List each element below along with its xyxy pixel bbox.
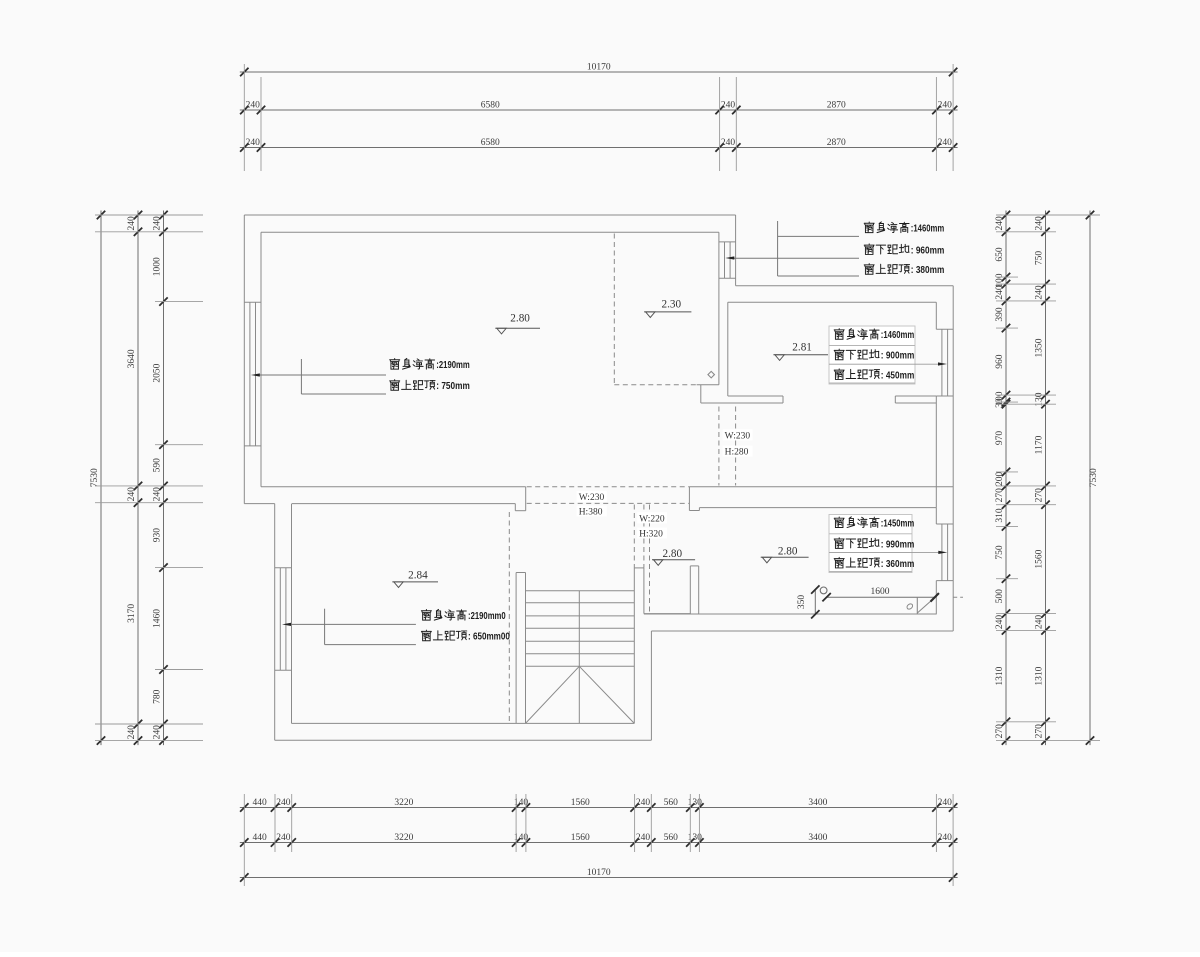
svg-text:1460: 1460 <box>153 609 163 628</box>
svg-text:240: 240 <box>938 833 953 843</box>
svg-text:270: 270 <box>995 488 1005 503</box>
svg-text:2870: 2870 <box>827 101 846 111</box>
svg-text:440: 440 <box>252 798 267 808</box>
svg-text:240: 240 <box>246 101 261 111</box>
svg-text::2190mm0: :2190mm0 <box>468 611 506 622</box>
svg-text:H:280: H:280 <box>725 448 749 458</box>
svg-text:W:220: W:220 <box>639 514 665 524</box>
svg-text:440: 440 <box>252 833 267 843</box>
svg-text:1000: 1000 <box>153 257 163 276</box>
svg-text:10170: 10170 <box>587 63 611 73</box>
svg-text:: 960mm: : 960mm <box>911 245 945 256</box>
svg-text:240: 240 <box>127 725 137 740</box>
svg-text:1170: 1170 <box>1035 435 1045 454</box>
svg-text:3640: 3640 <box>127 349 137 368</box>
svg-text::1460mm: :1460mm <box>881 330 915 341</box>
svg-text:240: 240 <box>995 216 1005 231</box>
svg-text:240: 240 <box>1035 285 1045 300</box>
svg-text:240: 240 <box>938 798 953 808</box>
svg-text:2870: 2870 <box>827 138 846 148</box>
svg-text:2.81: 2.81 <box>792 342 812 354</box>
svg-text:H:380: H:380 <box>579 508 603 518</box>
svg-text:240: 240 <box>276 798 291 808</box>
svg-text:: 360mm: : 360mm <box>881 559 915 570</box>
svg-text:2050: 2050 <box>153 363 163 382</box>
svg-text:2.84: 2.84 <box>408 570 428 582</box>
svg-text:3400: 3400 <box>808 798 827 808</box>
svg-text:W:230: W:230 <box>725 431 751 441</box>
svg-text::1460mm: :1460mm <box>911 224 945 235</box>
svg-text:2.30: 2.30 <box>662 299 682 311</box>
svg-text:650: 650 <box>995 247 1005 262</box>
svg-text:240: 240 <box>1035 615 1045 630</box>
svg-text:240: 240 <box>721 138 736 148</box>
svg-text:: 750mm: : 750mm <box>436 381 470 392</box>
svg-text:6580: 6580 <box>481 101 500 111</box>
svg-text:2.80: 2.80 <box>510 313 530 325</box>
svg-text:350: 350 <box>797 595 807 610</box>
svg-text::2190mm: :2190mm <box>436 360 470 371</box>
svg-text:560: 560 <box>664 798 679 808</box>
svg-text:240: 240 <box>153 725 163 740</box>
svg-text:: 450mm: : 450mm <box>881 370 915 381</box>
svg-text:590: 590 <box>153 458 163 473</box>
svg-text::1450mm: :1450mm <box>881 519 915 530</box>
svg-text:930: 930 <box>153 528 163 543</box>
svg-text:3220: 3220 <box>394 798 413 808</box>
svg-text:: 900mm: : 900mm <box>881 351 915 362</box>
svg-text:240: 240 <box>127 487 137 502</box>
svg-text:1310: 1310 <box>995 666 1005 685</box>
svg-text:240: 240 <box>153 216 163 231</box>
svg-text:240: 240 <box>636 833 651 843</box>
svg-text:270: 270 <box>995 724 1005 739</box>
svg-text:240: 240 <box>938 101 953 111</box>
svg-text:H:320: H:320 <box>639 530 663 540</box>
svg-text:240: 240 <box>276 833 291 843</box>
svg-text:200: 200 <box>995 472 1005 487</box>
svg-text:: 990mm: : 990mm <box>881 539 915 550</box>
svg-text:240: 240 <box>127 216 137 231</box>
svg-text:3220: 3220 <box>394 833 413 843</box>
svg-text:: 650mm00: : 650mm00 <box>468 632 510 643</box>
svg-text:270: 270 <box>1035 724 1045 739</box>
svg-text:270: 270 <box>1035 488 1045 503</box>
svg-text:240: 240 <box>938 138 953 148</box>
svg-text:2.80: 2.80 <box>778 546 798 558</box>
svg-text:240: 240 <box>1035 216 1045 231</box>
svg-text:7530: 7530 <box>1089 468 1099 487</box>
svg-text:970: 970 <box>995 431 1005 446</box>
svg-text:30: 30 <box>995 398 1005 408</box>
svg-text:240: 240 <box>153 487 163 502</box>
svg-text:240: 240 <box>995 615 1005 630</box>
svg-text:2.80: 2.80 <box>663 548 683 560</box>
svg-text:960: 960 <box>995 354 1005 369</box>
svg-text:1310: 1310 <box>1035 666 1045 685</box>
svg-text:240: 240 <box>246 138 261 148</box>
svg-text:500: 500 <box>995 589 1005 604</box>
svg-text:1560: 1560 <box>1035 549 1045 568</box>
svg-text:310: 310 <box>995 508 1005 523</box>
svg-text:780: 780 <box>153 689 163 704</box>
svg-text:W:230: W:230 <box>579 493 605 503</box>
svg-text:3170: 3170 <box>127 604 137 623</box>
svg-text:1560: 1560 <box>571 798 590 808</box>
svg-text:3400: 3400 <box>808 833 827 843</box>
svg-text:390: 390 <box>995 307 1005 322</box>
svg-text:7530: 7530 <box>90 468 100 487</box>
svg-text:240: 240 <box>721 101 736 111</box>
svg-text:6580: 6580 <box>481 138 500 148</box>
svg-text:750: 750 <box>1035 251 1045 266</box>
svg-text:560: 560 <box>664 833 679 843</box>
svg-text:1600: 1600 <box>871 587 890 597</box>
svg-text:: 380mm: : 380mm <box>911 265 945 276</box>
svg-text:750: 750 <box>995 545 1005 560</box>
svg-text:1350: 1350 <box>1035 338 1045 357</box>
svg-text:240: 240 <box>995 285 1005 300</box>
svg-text:10170: 10170 <box>587 868 611 878</box>
svg-text:1560: 1560 <box>571 833 590 843</box>
svg-text:240: 240 <box>636 798 651 808</box>
